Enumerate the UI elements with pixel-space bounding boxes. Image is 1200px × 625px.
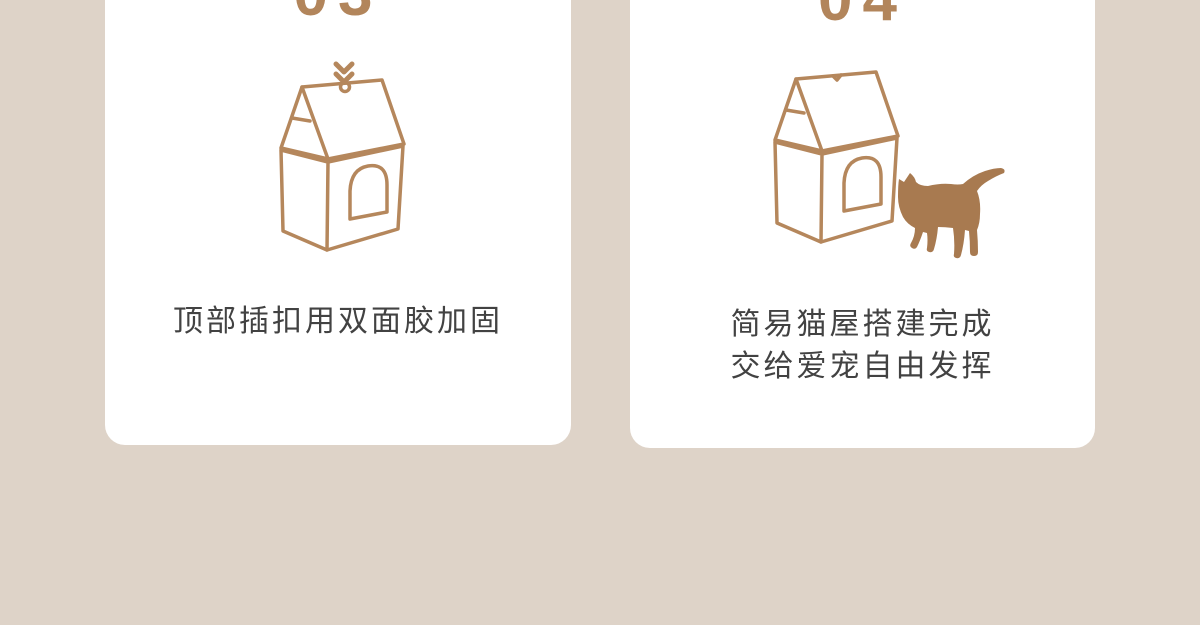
house-door-arch — [844, 158, 881, 211]
house-left-wall — [281, 150, 328, 250]
cat-house-icon — [764, 52, 904, 247]
caption-line: 顶部插扣用双面胶加固 — [105, 306, 571, 338]
cat-house-icon — [270, 60, 410, 255]
step-card-04: 04 简易猫屋搭建完成 交给爱宠自由发挥 — [630, 0, 1095, 448]
assembly-steps-infographic: 03 顶部插扣用双面胶加固 04 — [0, 0, 1200, 625]
house-left-wall — [775, 142, 822, 242]
step-number-03: 03 — [105, 0, 571, 26]
house-door-arch — [350, 166, 387, 219]
step-card-03: 03 顶部插扣用双面胶加固 — [105, 0, 571, 445]
house-right-wall — [821, 138, 897, 242]
cat-silhouette — [898, 168, 1005, 258]
chevron-down-icon — [336, 64, 352, 72]
house-roof — [302, 80, 404, 159]
house-right-wall — [327, 146, 403, 250]
gable-fold-line — [292, 118, 310, 121]
cat-icon — [893, 167, 1008, 262]
chevron-down-icon — [336, 74, 352, 82]
step-caption-03: 顶部插扣用双面胶加固 — [105, 306, 571, 338]
caption-line: 简易猫屋搭建完成 — [630, 304, 1095, 346]
house-roof — [796, 72, 898, 151]
step-caption-04: 简易猫屋搭建完成 交给爱宠自由发挥 — [630, 304, 1095, 388]
gable-fold-line — [786, 110, 804, 113]
step-number-04: 04 — [630, 0, 1095, 31]
caption-line: 交给爱宠自由发挥 — [630, 346, 1095, 388]
